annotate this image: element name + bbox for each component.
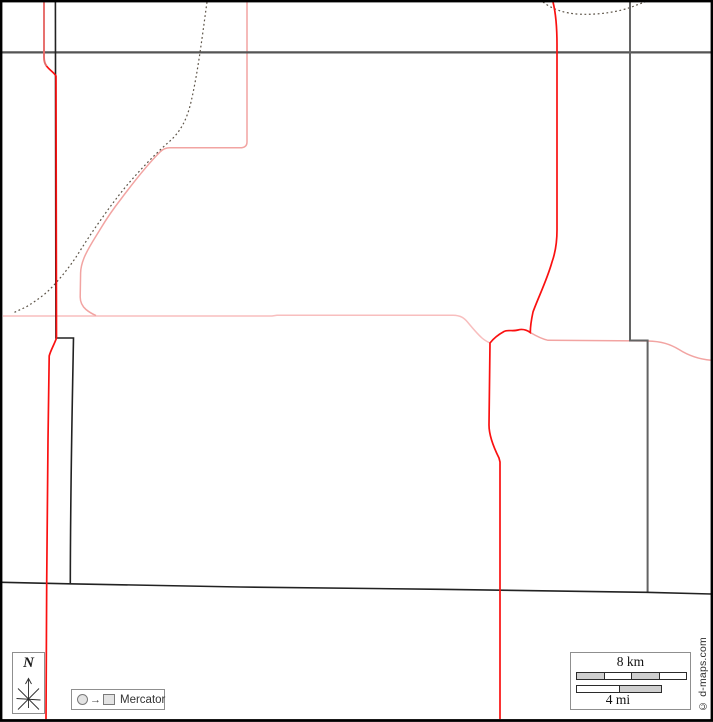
circle-marker-icon: [77, 694, 88, 705]
scale-km-label: 8 km: [576, 654, 685, 670]
square-marker-icon: [103, 694, 115, 705]
scale-km-bar: [576, 672, 687, 680]
scale-mi-label: 4 mi: [576, 692, 660, 708]
primary-road-top-left: [44, 2, 47, 66]
copyright-text: © d-maps.com: [697, 637, 709, 712]
boundary-right: [630, 2, 648, 592]
map-frame: [1, 1, 712, 720]
right-arrow-icon: →: [90, 695, 101, 705]
boundary-bottom-diagonal: [2, 582, 711, 594]
map-lines-layer: [0, 0, 713, 722]
secondary-road-right: [530, 333, 711, 361]
primary-road-right: [489, 2, 557, 719]
scale-km-segment: [660, 673, 687, 679]
map-canvas: N → Mercator 8 km 4 mi: [0, 0, 713, 722]
stream-dotted-line: [13, 2, 207, 313]
secondary-road-upper-left: [80, 2, 247, 316]
scale-bar: 8 km 4 mi: [570, 652, 691, 710]
north-label: N: [13, 656, 44, 670]
scale-km-segment: [632, 673, 660, 679]
north-indicator: N: [12, 652, 45, 714]
north-compass-icon: [14, 676, 42, 711]
scale-km-segment: [577, 673, 605, 679]
boundary-left: [55, 2, 73, 584]
projection-legend: → Mercator: [71, 689, 165, 710]
secondary-road-horizontal: [3, 315, 490, 343]
scale-km-segment: [605, 673, 633, 679]
projection-label: Mercator: [120, 694, 165, 706]
